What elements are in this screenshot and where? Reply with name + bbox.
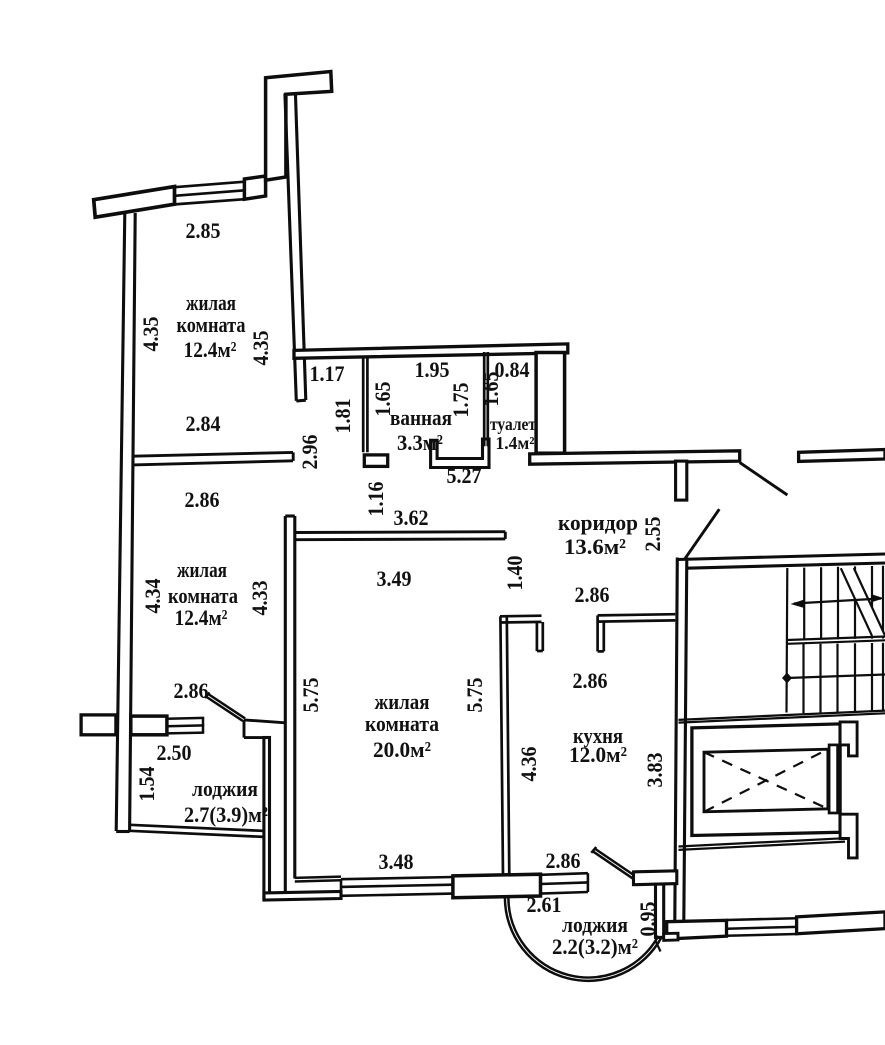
svg-text:5.75: 5.75 <box>298 678 323 713</box>
svg-text:жилая: жилая <box>177 557 227 582</box>
svg-text:2.86: 2.86 <box>573 668 608 693</box>
svg-text:1.54: 1.54 <box>134 767 159 802</box>
svg-text:4.35: 4.35 <box>248 331 273 366</box>
svg-text:лоджия: лоджия <box>192 776 258 801</box>
svg-text:2.7(3.9)м²: 2.7(3.9)м² <box>184 802 268 827</box>
svg-text:3.83: 3.83 <box>642 753 667 788</box>
svg-text:5.27: 5.27 <box>447 463 482 488</box>
svg-text:2.86: 2.86 <box>546 848 581 873</box>
svg-text:1.95: 1.95 <box>415 357 450 382</box>
svg-text:2.86: 2.86 <box>185 487 220 512</box>
svg-text:2.96: 2.96 <box>297 435 322 470</box>
svg-text:12.0м²: 12.0м² <box>569 742 627 767</box>
svg-text:2.55: 2.55 <box>640 517 665 552</box>
svg-text:2.2(3.2)м²: 2.2(3.2)м² <box>552 934 638 959</box>
svg-text:4.33: 4.33 <box>247 581 272 616</box>
svg-text:1.75: 1.75 <box>448 383 473 418</box>
svg-text:1.16: 1.16 <box>363 482 388 517</box>
svg-text:3.62: 3.62 <box>394 505 429 530</box>
svg-text:коридор: коридор <box>558 510 638 535</box>
svg-text:туалет: туалет <box>490 414 536 434</box>
svg-text:4.34: 4.34 <box>140 579 165 614</box>
svg-text:1.4м²: 1.4м² <box>496 433 535 453</box>
svg-text:4.36: 4.36 <box>516 747 541 782</box>
svg-text:5.75: 5.75 <box>462 678 487 713</box>
svg-text:4.35: 4.35 <box>138 317 163 352</box>
svg-text:2.61: 2.61 <box>527 892 562 917</box>
svg-text:2.50: 2.50 <box>157 740 192 765</box>
svg-text:3.49: 3.49 <box>377 566 412 591</box>
svg-text:3.48: 3.48 <box>379 849 414 874</box>
svg-text:3.3м²: 3.3м² <box>397 430 443 455</box>
svg-text:12.4м²: 12.4м² <box>175 605 228 630</box>
svg-text:ванная: ванная <box>390 405 452 430</box>
svg-text:комната: комната <box>365 711 439 736</box>
svg-text:12.4м²: 12.4м² <box>184 337 237 362</box>
svg-text:1.65: 1.65 <box>478 372 503 407</box>
svg-text:0.95: 0.95 <box>635 902 660 937</box>
svg-text:1.17: 1.17 <box>310 361 345 386</box>
svg-text:1.40: 1.40 <box>502 556 527 591</box>
svg-text:2.86: 2.86 <box>174 678 209 703</box>
svg-text:13.6м²: 13.6м² <box>564 534 626 559</box>
svg-text:2.86: 2.86 <box>575 582 610 607</box>
svg-text:20.0м²: 20.0м² <box>373 737 431 762</box>
svg-text:2.84: 2.84 <box>186 411 221 436</box>
svg-text:2.85: 2.85 <box>186 218 221 243</box>
svg-text:1.81: 1.81 <box>330 399 355 434</box>
svg-text:комната: комната <box>177 312 246 337</box>
